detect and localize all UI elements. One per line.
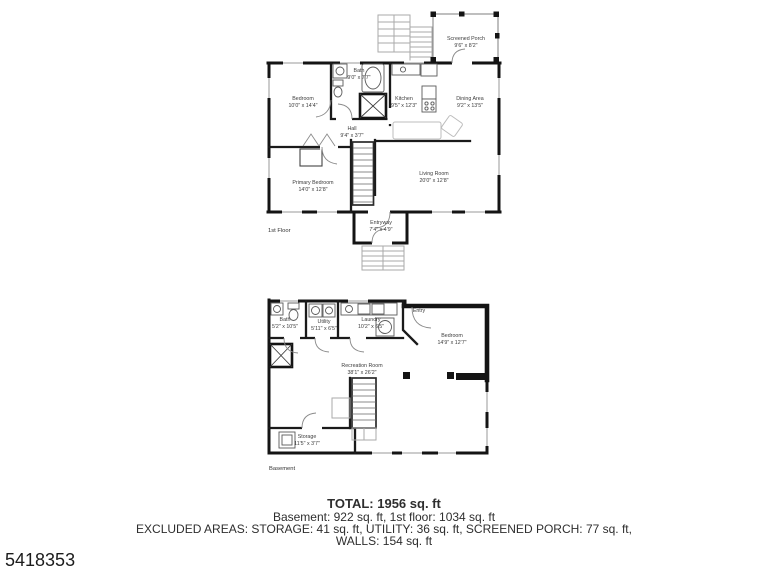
room-label-entryway: Entryway — [370, 220, 392, 226]
room-label-living-room: Living Room — [419, 171, 449, 177]
room-label-entry: Entry — [413, 308, 426, 314]
room-label-bedroom: Bedroom — [292, 96, 314, 102]
room-dims-bedroom: 10'0" x 14'4" — [288, 103, 317, 109]
room-label-primary-bedroom: Primary Bedroom — [292, 180, 334, 186]
entry-steps — [362, 246, 404, 270]
room-dims-recreation: 38'1" x 26'2" — [347, 370, 376, 376]
first-floor-furniture — [393, 115, 463, 139]
room-label-screened-porch: Screened Porch — [447, 36, 485, 42]
listing-id: 5418353 — [5, 550, 75, 571]
room-dims-hall: 9'4" x 3'7" — [340, 133, 363, 139]
room-dims-screened-porch: 9'6" x 8'2" — [454, 43, 477, 49]
room-dims-bsmt-bath: 5'2" x 10'5" — [272, 324, 298, 330]
room-dims-dining: 9'2" x 13'5" — [457, 103, 483, 109]
room-dims-living-room: 20'0" x 12'8" — [419, 178, 448, 184]
room-label-bath: Bath — [354, 68, 365, 74]
room-label-dining: Dining Area — [456, 96, 483, 102]
first-floor-plan: Screened Porch 9'6" x 8'2" Bedroom 10'0"… — [268, 12, 500, 271]
basement-shower — [270, 344, 292, 367]
walls-area-text: WALLS: 154 sq. ft — [0, 535, 768, 547]
first-floor-stairs — [353, 142, 374, 205]
floor-plans-svg: Screened Porch 9'6" x 8'2" Bedroom 10'0"… — [0, 0, 768, 577]
room-label-hall: Hall — [347, 126, 356, 132]
room-dims-laundry: 10'2" x 6'5" — [358, 324, 384, 330]
floor-areas-text: Basement: 922 sq. ft, 1st floor: 1034 sq… — [0, 511, 768, 523]
floor-label-1st-floor: 1st Floor — [268, 228, 291, 234]
room-dims-primary-bedroom: 14'0" x 12'8" — [298, 187, 327, 193]
basement-plan: Bath 5'2" x 10'5" Utility 5'11" x 6'5" L… — [269, 300, 487, 472]
room-dims-bsmt-bedroom: 14'9" x 12'7" — [437, 340, 466, 346]
room-dims-kitchen: 9'5" x 12'3" — [391, 103, 417, 109]
total-area-text: TOTAL: 1956 sq. ft — [0, 498, 768, 511]
room-label-kitchen: Kitchen — [395, 96, 413, 102]
room-dims-storage: 11'5" x 3'7" — [294, 441, 320, 447]
room-label-utility: Utility — [318, 319, 331, 325]
room-label-recreation: Recreation Room — [341, 363, 383, 369]
floor-plan-page: Screened Porch 9'6" x 8'2" Bedroom 10'0"… — [0, 0, 768, 577]
room-label-laundry: Laundry — [361, 317, 380, 323]
deck-steps — [378, 15, 432, 62]
room-label-bsmt-bedroom: Bedroom — [441, 333, 463, 339]
room-label-bsmt-bath: Bath — [280, 317, 291, 323]
room-dims-entryway: 7'4" x 4'9" — [369, 227, 392, 233]
room-dims-utility: 5'11" x 6'5" — [311, 326, 337, 332]
area-summary: TOTAL: 1956 sq. ft Basement: 922 sq. ft,… — [0, 498, 768, 547]
room-dims-bath: 9'0" x 7'7" — [347, 75, 370, 81]
first-floor-fixtures — [333, 64, 437, 118]
floor-label-basement: Basement — [269, 466, 295, 472]
room-label-storage: Storage — [298, 434, 317, 440]
